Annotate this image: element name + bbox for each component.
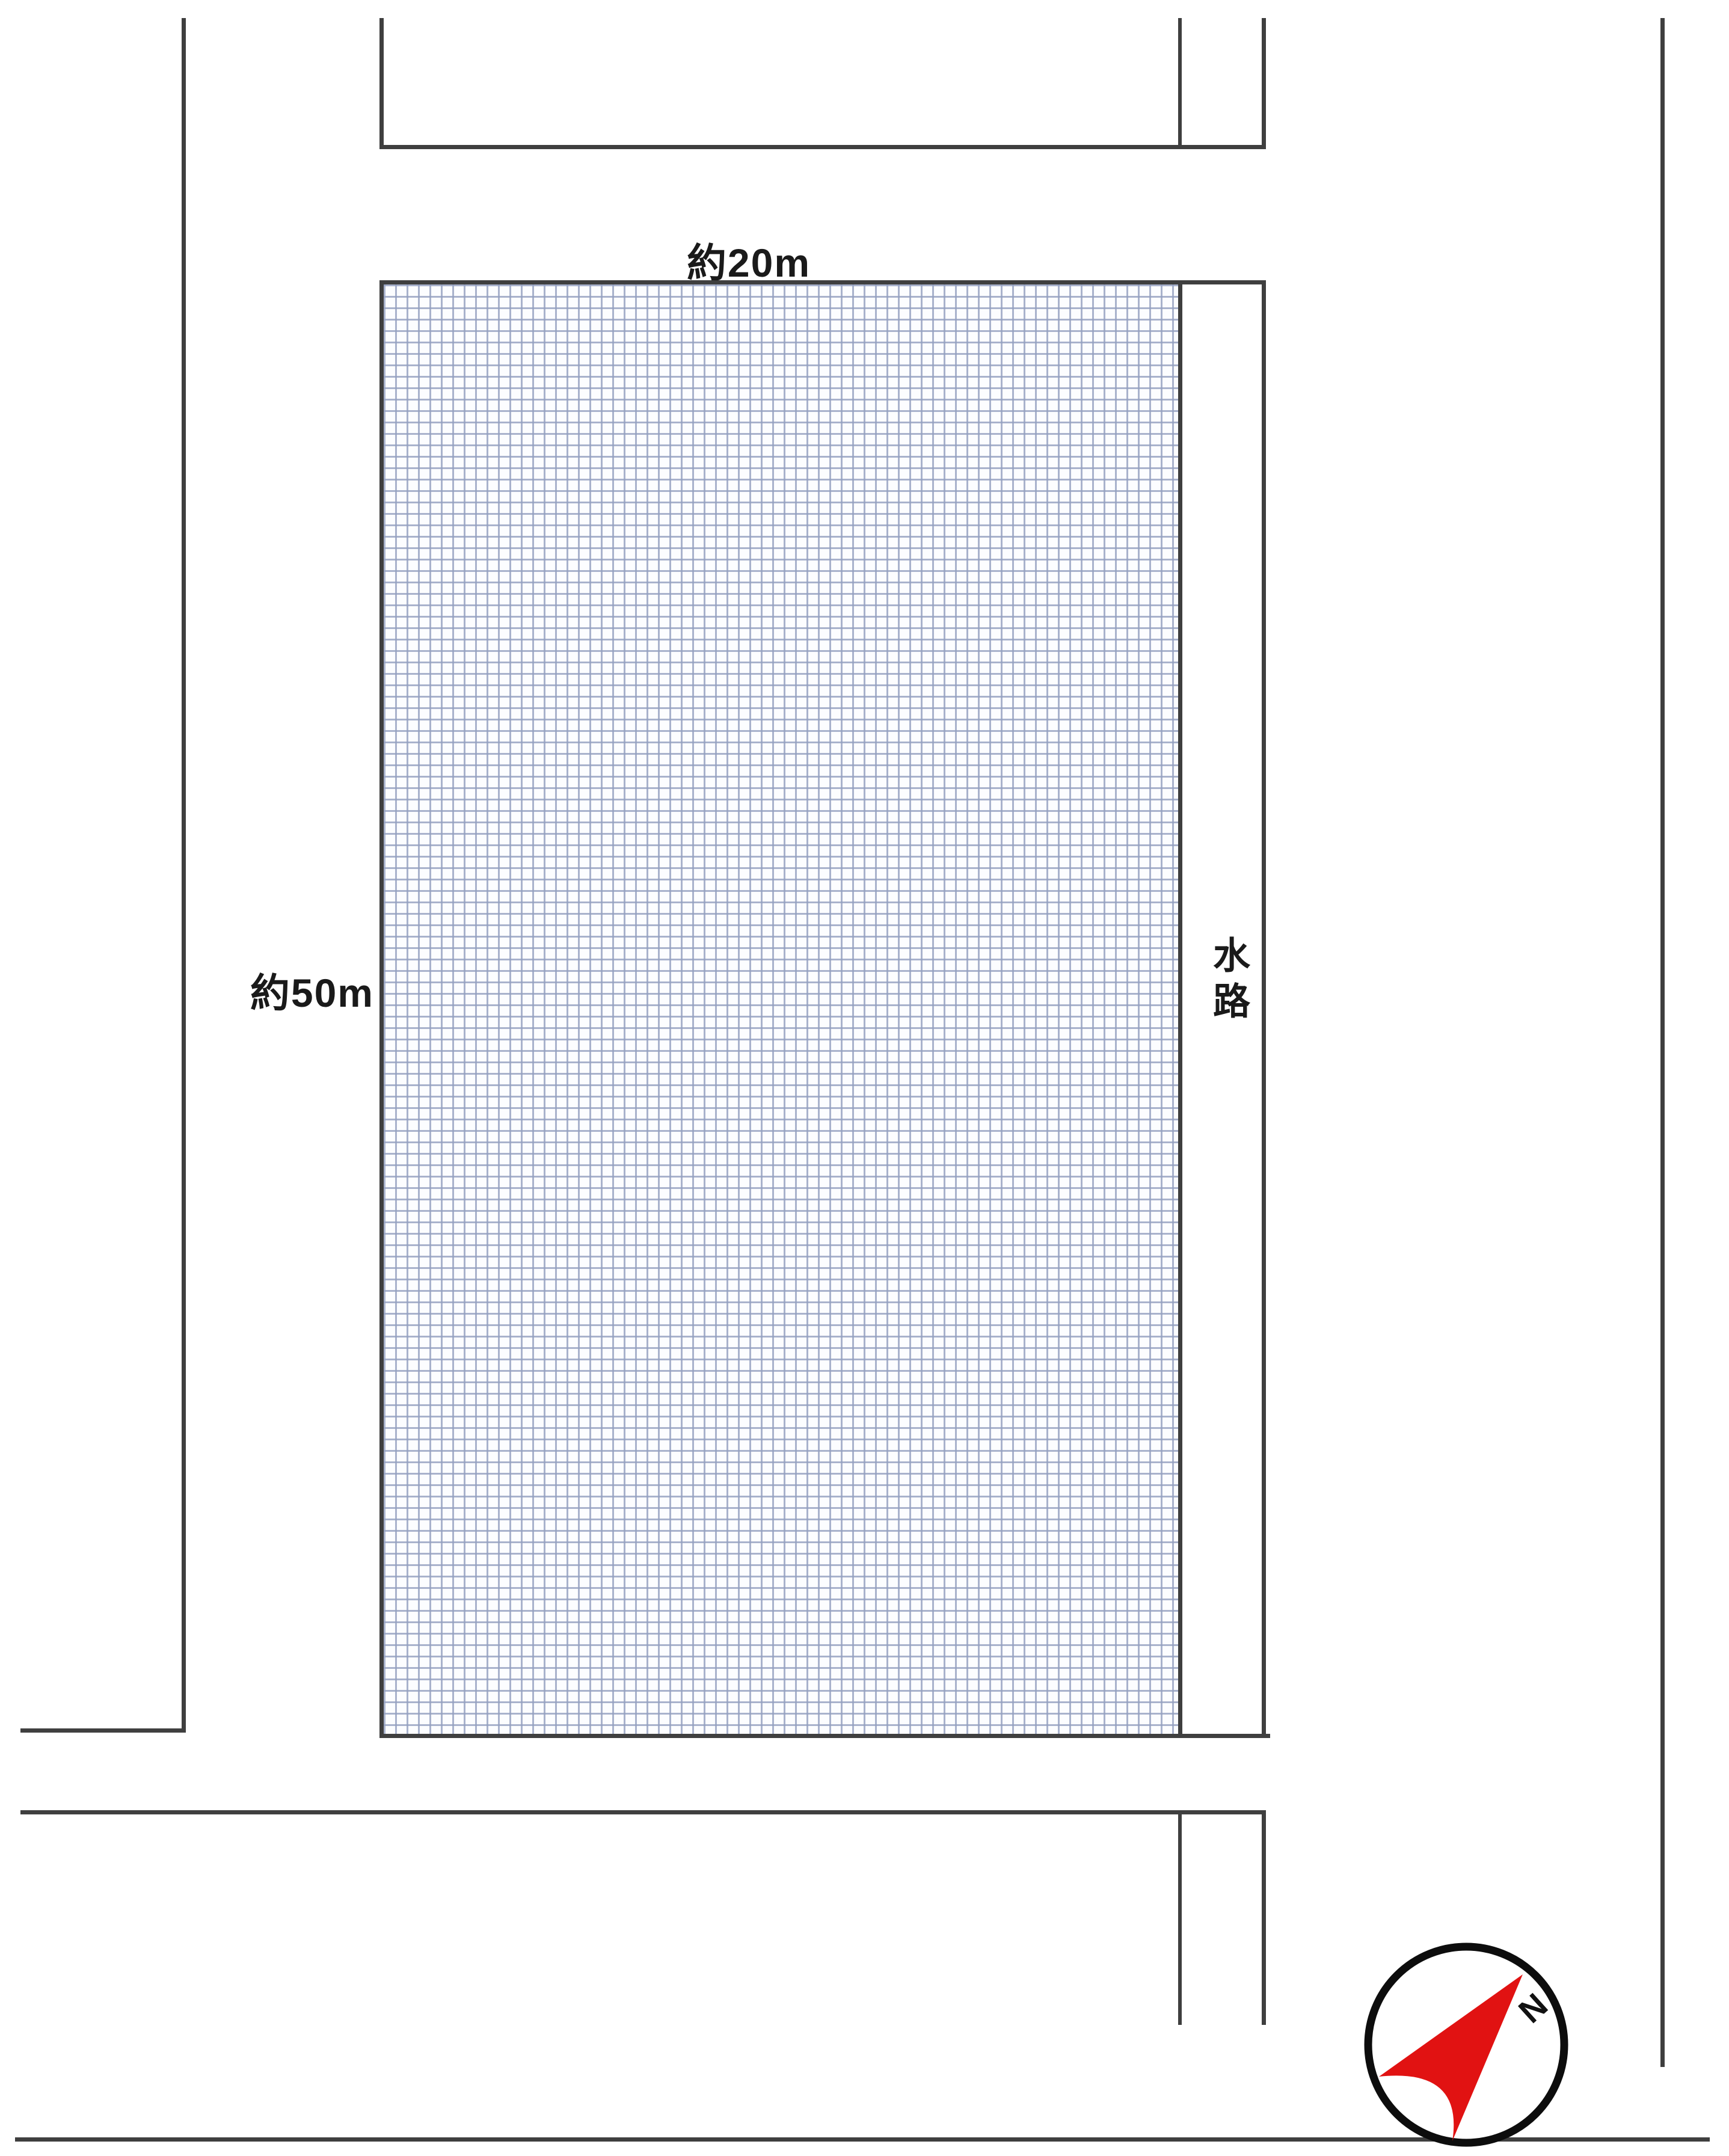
- land-plot-grid: [384, 284, 1178, 1734]
- top-dimension-label: 約20m: [361, 231, 1137, 289]
- left-dimension-label: 約50m: [204, 961, 374, 1019]
- compass: N: [1346, 1924, 1586, 2156]
- waterway-line-lower-west: [1178, 1814, 1182, 2025]
- waterway-line-upper-west: [1178, 18, 1182, 145]
- road-line-left-vertical: [182, 18, 186, 1733]
- road-line-top: [379, 145, 1266, 149]
- road-line-bottom: [20, 1810, 1266, 1814]
- waterway-line-upper-east: [1262, 18, 1266, 149]
- waterway-line-lower-east: [1262, 1814, 1266, 2025]
- plot-border-left: [379, 280, 384, 1738]
- waterway-line-east: [1262, 280, 1266, 1738]
- plot-border-bottom: [379, 1734, 1270, 1738]
- road-line-right-vertical: [1660, 18, 1665, 2067]
- site-plan-canvas: 約20m 約50m 水路 N: [0, 0, 1729, 2156]
- road-line-left-hook: [20, 1728, 186, 1733]
- waterway-label: 水路: [1200, 936, 1255, 1027]
- plot-border-right-waterway-west: [1178, 280, 1182, 1738]
- boundary-extension-top-left: [379, 18, 384, 147]
